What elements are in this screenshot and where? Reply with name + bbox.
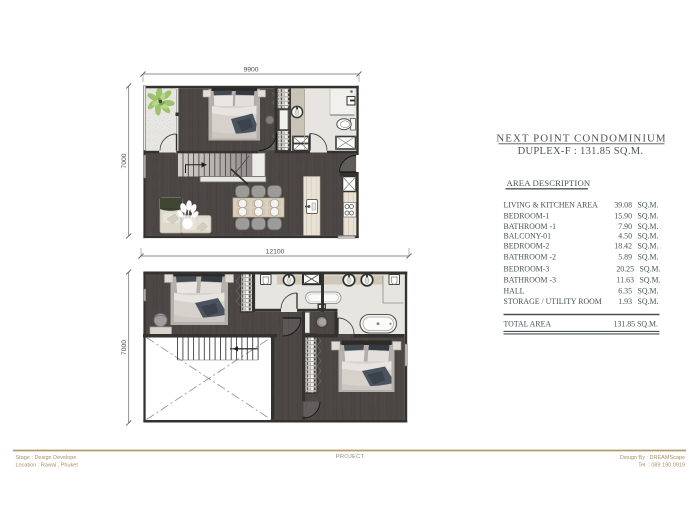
svg-text:18.42: 18.42 [614, 242, 632, 251]
svg-text:Stage : Design Develope: Stage : Design Develope [16, 455, 77, 461]
svg-text:11.63: 11.63 [617, 275, 634, 284]
svg-text:SQ.M.: SQ.M. [638, 201, 659, 210]
svg-text:LIVING & KITCHEN AREA: LIVING & KITCHEN AREA [504, 201, 599, 210]
svg-text:SQ.M.: SQ.M. [638, 253, 659, 262]
svg-text:7000: 7000 [121, 153, 128, 168]
svg-text:BEDROOM-2: BEDROOM-2 [504, 242, 550, 251]
svg-text:SQ.M.: SQ.M. [640, 275, 661, 284]
svg-text:131.85 SQ.M.: 131.85 SQ.M. [614, 319, 658, 328]
svg-text:BEDROOM-1: BEDROOM-1 [504, 211, 550, 220]
svg-text:15.90: 15.90 [614, 211, 632, 220]
svg-text:BEDROOM-3: BEDROOM-3 [504, 265, 550, 274]
svg-text:BALCONY-01: BALCONY-01 [504, 232, 552, 241]
svg-text:6.35: 6.35 [618, 286, 632, 295]
svg-text:SQ.M.: SQ.M. [640, 265, 661, 274]
svg-text:12100: 12100 [266, 249, 285, 256]
svg-text:1.93: 1.93 [618, 297, 632, 306]
svg-text:Design By : DREAMScape: Design By : DREAMScape [620, 455, 685, 461]
svg-text:SQ.M.: SQ.M. [638, 222, 659, 231]
svg-text:39.08: 39.08 [614, 201, 632, 210]
svg-text:STORAGE / UTILITY ROOM: STORAGE / UTILITY ROOM [504, 297, 602, 306]
svg-text:SQ.M.: SQ.M. [638, 286, 659, 295]
svg-text:5.89: 5.89 [618, 253, 632, 262]
svg-text:20.25: 20.25 [616, 265, 634, 274]
svg-text:Location : Rawai , Phuket: Location : Rawai , Phuket [16, 463, 79, 469]
svg-text:NEXT POINT CONDOMINIUM: NEXT POINT CONDOMINIUM [496, 133, 666, 145]
svg-text:BATHROOM -2: BATHROOM -2 [504, 253, 557, 262]
svg-text:TOTAL AREA: TOTAL AREA [504, 319, 552, 328]
svg-text:SQ.M.: SQ.M. [638, 297, 659, 306]
svg-text:PROJECT: PROJECT [336, 454, 365, 460]
svg-text:4.50: 4.50 [618, 232, 632, 241]
svg-text:Tel. : 089 190 0919: Tel. : 089 190 0919 [638, 463, 685, 469]
svg-text:SQ.M.: SQ.M. [638, 242, 659, 251]
svg-text:BATHROOM -1: BATHROOM -1 [504, 222, 557, 231]
svg-text:AREA DESCRIPTION: AREA DESCRIPTION [507, 178, 591, 188]
svg-text:9900: 9900 [243, 67, 258, 74]
svg-text:SQ.M.: SQ.M. [638, 232, 659, 241]
svg-text:SQ.M.: SQ.M. [638, 211, 659, 220]
svg-text:7000: 7000 [121, 340, 128, 355]
svg-text:BATHROOM -3: BATHROOM -3 [504, 275, 557, 284]
svg-text:DUPLEX-F : 131.85 SQ.M.: DUPLEX-F : 131.85 SQ.M. [518, 146, 644, 157]
svg-text:HALL: HALL [504, 286, 525, 295]
svg-text:7.90: 7.90 [618, 222, 632, 231]
